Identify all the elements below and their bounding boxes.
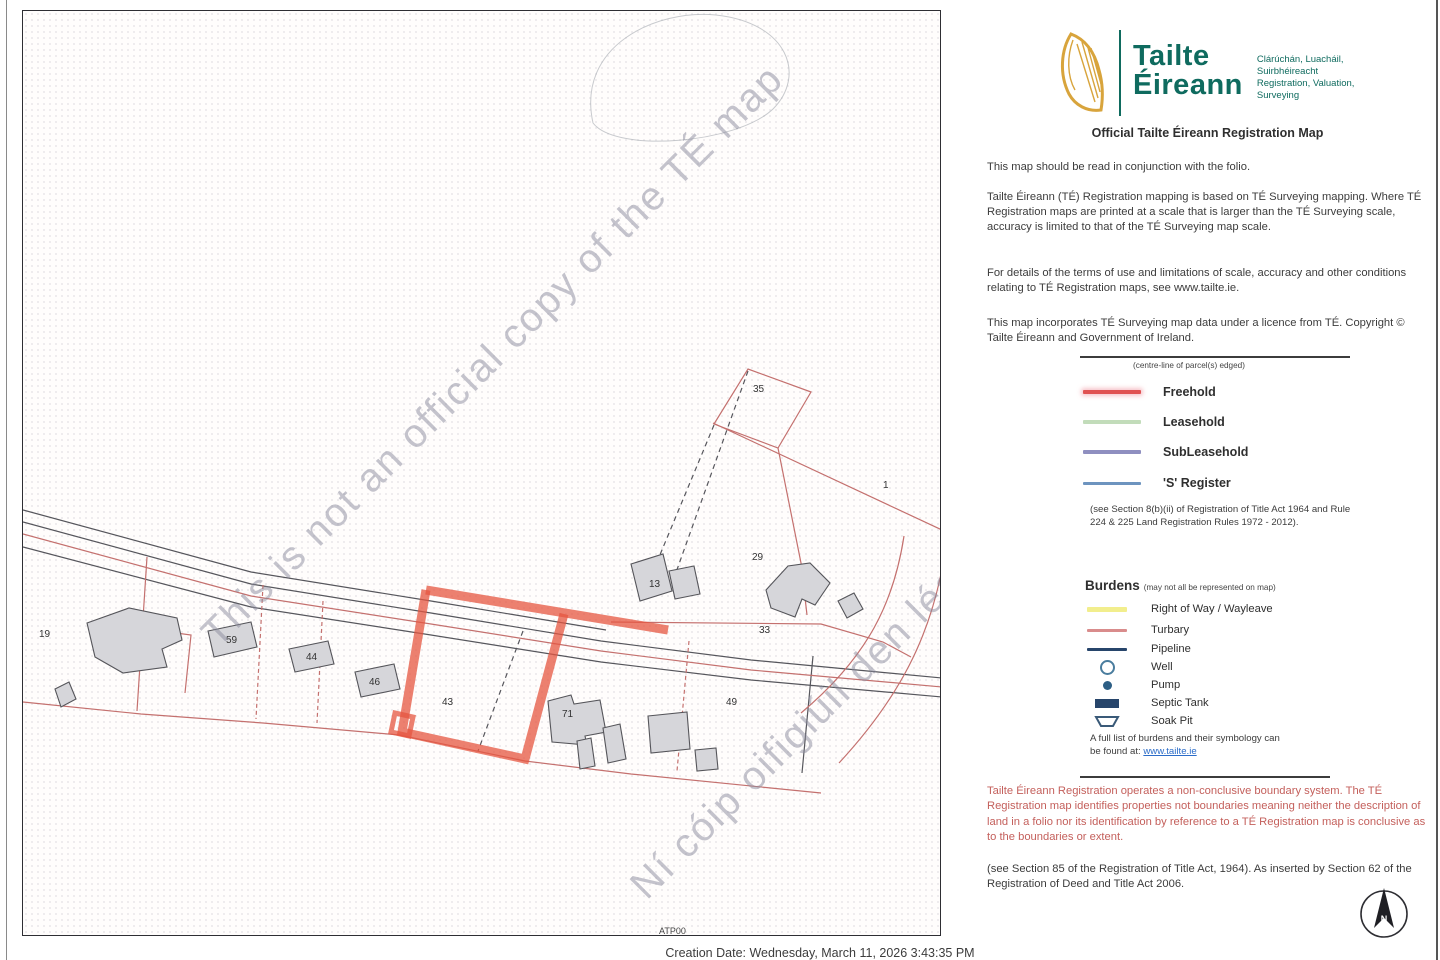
paragraph-terms: For details of the terms of use and limi…: [987, 266, 1430, 296]
document-title: Official Tailte Éireann Registration Map: [985, 126, 1430, 140]
burdens-heading-note: (may not all be represented on map): [1144, 583, 1276, 592]
burden-item-pipeline: Pipeline: [1085, 642, 1191, 656]
turbary-line-swatch: [1085, 629, 1129, 632]
parcel-label: 29: [752, 552, 764, 563]
page-border-right: [1436, 0, 1438, 960]
boundary-warning-text: Tailte Éireann Registration operates a n…: [987, 784, 1430, 846]
tagline-line: Registration, Valuation,: [1257, 78, 1355, 90]
burden-label: Pipeline: [1151, 643, 1191, 655]
brand-name: Tailte Éireann: [1133, 42, 1243, 100]
burden-item-turbary: Turbary: [1085, 623, 1189, 637]
parcel-label: 19: [39, 629, 51, 640]
burden-label: Soak Pit: [1151, 715, 1193, 727]
tagline-line: Suirbhéireacht: [1257, 66, 1355, 78]
creation-date: Creation Date: Wednesday, March 11, 2026…: [580, 946, 1060, 960]
map-canvas: 35 1 29 13 33 19 59 44 46 43 71 49 This …: [22, 10, 941, 936]
page-border-left: [6, 0, 7, 960]
freehold-line-swatch: [1083, 390, 1141, 394]
parcel-label: 49: [726, 697, 738, 708]
pipeline-line-swatch: [1085, 648, 1129, 651]
parcel-label: 71: [562, 709, 574, 720]
buildings: [55, 554, 863, 771]
burden-label: Turbary: [1151, 624, 1189, 636]
paragraph-folio: This map should be read in conjunction w…: [987, 160, 1430, 175]
sheet-label: ATP00: [659, 926, 686, 936]
burdens-heading-text: Burdens: [1085, 578, 1140, 593]
legend-note: (centre-line of parcel(s) edged): [1133, 361, 1245, 370]
laneway-line: [674, 371, 748, 578]
burdens-heading: Burdens(may not all be represented on ma…: [1085, 578, 1276, 593]
tailte-website-link[interactable]: www.tailte.ie: [1143, 746, 1196, 757]
legend-item-freehold: Freehold: [1083, 384, 1216, 400]
burdens-footer-line2: be found at:: [1090, 746, 1143, 757]
soak-pit-trapezoid-swatch: [1085, 715, 1129, 728]
septic-tank-rect-swatch: [1085, 699, 1129, 708]
burdens-footer: A full list of burdens and their symbolo…: [1090, 732, 1390, 759]
legend-statute-note: (see Section 8(b)(ii) of Registration of…: [1090, 503, 1355, 529]
tagline-line: Surveying: [1257, 90, 1355, 102]
legend-label: 'S' Register: [1163, 476, 1231, 490]
parcel-label: 1: [883, 480, 889, 491]
burden-item-pump: Pump: [1085, 678, 1180, 692]
logo-divider: [1119, 30, 1121, 116]
brand-tagline: Clárúchán, Luacháil, Suirbhéireacht Regi…: [1257, 54, 1355, 102]
s-register-line-swatch: [1083, 482, 1141, 485]
burden-item-soak-pit: Soak Pit: [1085, 714, 1193, 728]
paragraph-copyright: This map incorporates TÉ Surveying map d…: [987, 316, 1430, 346]
burden-item-right-of-way: Right of Way / Wayleave: [1085, 602, 1273, 616]
burden-item-well: Well: [1085, 660, 1173, 674]
harp-icon: [1057, 28, 1109, 116]
burden-label: Right of Way / Wayleave: [1151, 603, 1273, 615]
legend-item-s-register: 'S' Register: [1083, 475, 1231, 491]
burden-label: Well: [1151, 661, 1173, 673]
registration-map-page: 35 1 29 13 33 19 59 44 46 43 71 49 This …: [0, 0, 1440, 960]
well-circle-swatch: [1085, 660, 1129, 675]
legend-item-leasehold: Leasehold: [1083, 414, 1225, 430]
legend-label: Freehold: [1163, 385, 1216, 399]
paragraph-scale: Tailte Éireann (TÉ) Registration mapping…: [987, 190, 1430, 234]
warning-separator: [1080, 776, 1330, 778]
tailte-eireann-logo: Tailte Éireann Clárúchán, Luacháil, Suir…: [1057, 28, 1354, 116]
leasehold-line-swatch: [1083, 420, 1141, 424]
svg-text:N: N: [1381, 914, 1388, 924]
legend-label: Leasehold: [1163, 415, 1225, 429]
parcel-label: 43: [442, 697, 454, 708]
burden-item-septic-tank: Septic Tank: [1085, 696, 1209, 710]
pump-dot-swatch: [1085, 681, 1129, 690]
info-panel: Tailte Éireann Clárúchán, Luacháil, Suir…: [985, 0, 1430, 960]
highlighted-parcel-boundary: [391, 590, 668, 759]
north-arrow-icon: N: [1353, 882, 1415, 944]
parcel-label: 33: [759, 625, 771, 636]
burden-label: Pump: [1151, 679, 1180, 691]
parcel-label: 46: [369, 677, 381, 688]
legend-label: SubLeasehold: [1163, 445, 1248, 459]
parcel-label: 13: [649, 579, 661, 590]
legend-item-subleasehold: SubLeasehold: [1083, 444, 1248, 460]
brand-line2: Éireann: [1133, 71, 1243, 100]
tagline-line: Clárúchán, Luacháil,: [1257, 54, 1355, 66]
parcel-label: 44: [306, 652, 318, 663]
cadastral-map-svg: 35 1 29 13 33 19 59 44 46 43 71 49: [23, 11, 941, 936]
burdens-footer-line1: A full list of burdens and their symbolo…: [1090, 733, 1280, 744]
subleasehold-line-swatch: [1083, 450, 1141, 454]
legend-separator-top: [1080, 356, 1350, 358]
parcel-labels: 35 1 29 13 33 19 59 44 46 43 71 49: [39, 384, 889, 720]
parcel-label: 35: [753, 384, 765, 395]
right-of-way-line-swatch: [1085, 607, 1129, 612]
internal-boundary-dashed: [478, 631, 523, 751]
burden-label: Septic Tank: [1151, 697, 1209, 709]
brand-line1: Tailte: [1133, 42, 1243, 71]
